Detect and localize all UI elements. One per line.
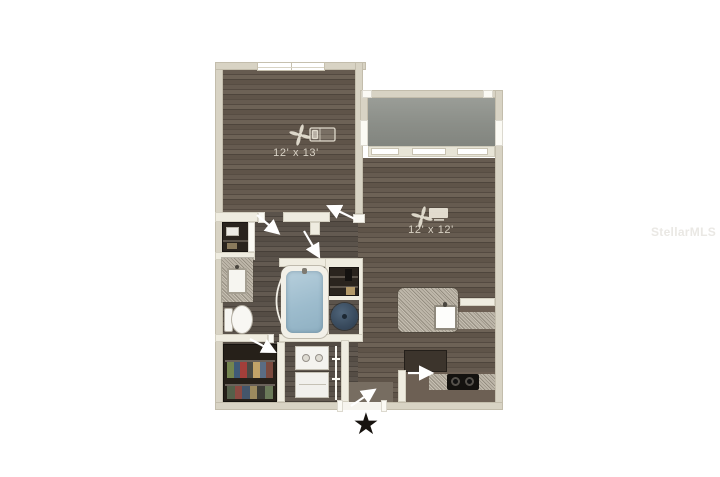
- entry-star-icon: ★: [350, 410, 382, 440]
- floorplan: 12' x 13' 12' x 12': [215, 62, 503, 410]
- plan-overlay: [215, 62, 503, 410]
- ceiling-fan-icon: [289, 124, 311, 146]
- door-swing-bathroom: [304, 231, 318, 255]
- floorplan-image: 12' x 13' 12' x 12' ★ StellarMLS: [0, 0, 720, 477]
- door-swing-closet: [257, 215, 277, 232]
- living-room-dimensions-label: 12' x 12': [389, 224, 473, 236]
- door-swing-walkin-closet: [250, 339, 273, 351]
- shower-curtain-arc: [277, 272, 286, 330]
- entry-door-swing: [351, 391, 373, 406]
- watermark: StellarMLS: [651, 225, 716, 239]
- door-swing-bedroom: [330, 207, 355, 219]
- bed-icon: [310, 128, 335, 141]
- bedroom-dimensions-label: 12' x 13': [254, 147, 338, 159]
